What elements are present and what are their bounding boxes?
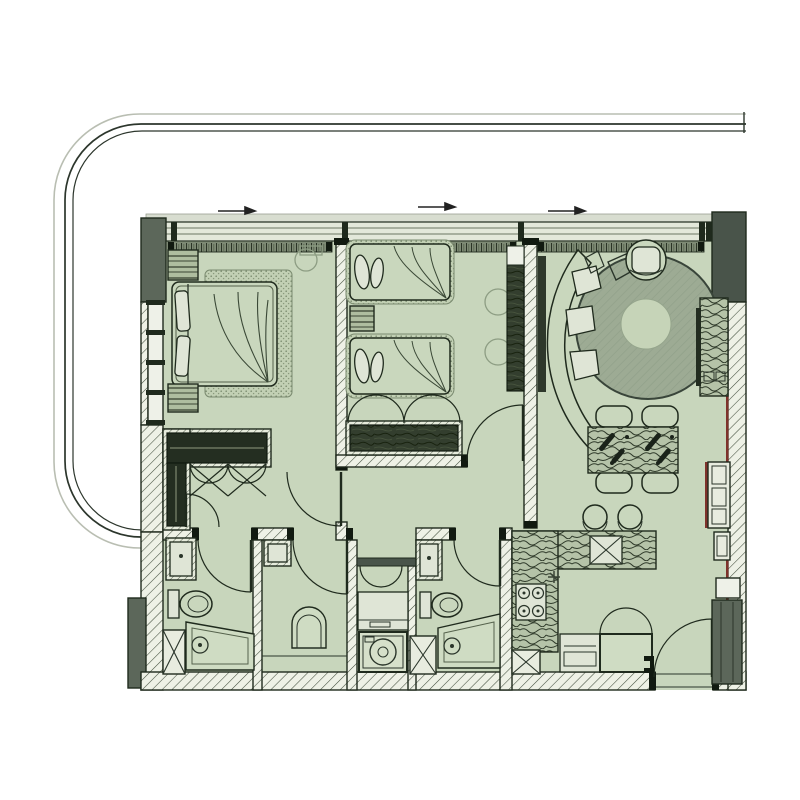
duct-shaft	[512, 650, 540, 674]
armchair	[626, 240, 666, 280]
exterior-wall-left	[128, 218, 166, 690]
vanity	[166, 538, 196, 580]
vanity	[416, 540, 442, 580]
twin-bed-1	[346, 240, 454, 304]
duct-shaft	[163, 630, 185, 674]
floor-plan-drawing: Two-bedroom apartment floor plan with wr…	[0, 0, 800, 800]
exterior-wall-top-window-band	[146, 214, 712, 241]
washing-machine	[359, 632, 407, 672]
exterior-wall-bottom	[141, 672, 746, 690]
wall-hung-toilet	[292, 607, 326, 648]
gray-wall-block-topright	[712, 212, 746, 302]
washbasin	[264, 540, 291, 566]
window-opening-arrows	[218, 203, 585, 214]
tv-screen	[696, 308, 701, 386]
floor-plan-page: Two-bedroom apartment floor plan with wr…	[0, 0, 800, 800]
stove	[516, 584, 546, 620]
toilet	[420, 592, 462, 618]
laundry-cabinet	[358, 592, 408, 630]
kitchen-sink	[590, 536, 622, 564]
bar-stool	[583, 505, 607, 529]
entry-tall-cabinet	[712, 578, 742, 684]
gray-wall-block-topleft	[141, 218, 166, 302]
bar-stool	[618, 505, 642, 529]
master-bed	[172, 282, 277, 386]
nightstand	[168, 250, 198, 280]
side-wardrobe	[507, 246, 524, 391]
twin-bed-2	[346, 334, 454, 398]
toilet	[168, 590, 212, 618]
nightstand	[168, 384, 198, 412]
nightstand	[350, 306, 374, 331]
round-rug-center	[621, 299, 671, 349]
duct-shaft	[410, 636, 436, 674]
media-panel	[538, 256, 546, 392]
tv-console	[696, 298, 728, 396]
